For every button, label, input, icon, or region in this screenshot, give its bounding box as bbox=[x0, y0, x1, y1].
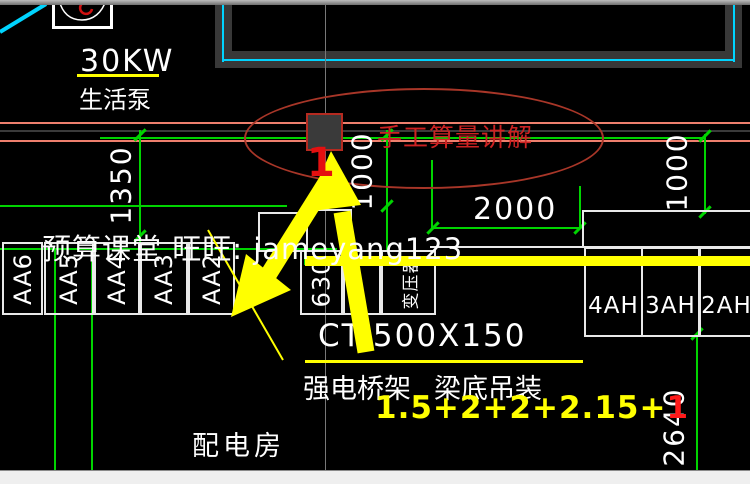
pump-name-label: 生活泵 bbox=[79, 80, 151, 115]
dim-line-1000-right bbox=[704, 134, 706, 214]
conduit-line-vertical-left bbox=[222, 5, 224, 62]
panel-label: AA6 bbox=[9, 253, 37, 305]
panel-cell-aa6: AA6 bbox=[2, 242, 43, 315]
panel-label: 3AH bbox=[645, 293, 696, 319]
layout-line-vertical-right bbox=[582, 210, 584, 248]
dim-ext-2000-right bbox=[579, 186, 581, 228]
dim-text-1000-right: 1000 bbox=[661, 132, 694, 211]
dim-text-2000: 2000 bbox=[473, 192, 557, 227]
formula-main: 1.5+2+2+2.15+ bbox=[375, 390, 666, 426]
tray-underline bbox=[305, 360, 583, 363]
cad-drawing-canvas[interactable]: AA6 AA5 AA4 AA3 AA2 630 变压器 4AH 3AH 2AH … bbox=[0, 0, 750, 484]
pump-underline bbox=[77, 74, 159, 77]
watermark: 预算课堂 旺旺: jameyang123 bbox=[42, 226, 463, 268]
panel-label: 2AH bbox=[701, 293, 750, 319]
panel-label: 4AH bbox=[588, 293, 639, 319]
dim-text-1350: 1350 bbox=[105, 145, 138, 224]
window-top-bar bbox=[0, 0, 750, 5]
conduit-line-horizontal bbox=[222, 59, 735, 61]
status-bar bbox=[0, 470, 750, 484]
circled-annotation-text: 手工算量讲解 bbox=[377, 118, 533, 154]
formula-text: 1.5+2+2+2.15+1 bbox=[375, 390, 689, 426]
cable-tray-size-label: CT-500X150 bbox=[318, 318, 527, 354]
work-line-upper bbox=[0, 205, 287, 207]
dim-line-2640 bbox=[696, 333, 698, 470]
formula-suffix: 1 bbox=[666, 390, 689, 426]
dim-text-1000-mid: 1000 bbox=[346, 131, 379, 210]
room-label: 配电房 bbox=[192, 424, 285, 463]
conduit-line-vertical-right bbox=[733, 5, 735, 62]
marker-number: 1 bbox=[307, 143, 335, 183]
